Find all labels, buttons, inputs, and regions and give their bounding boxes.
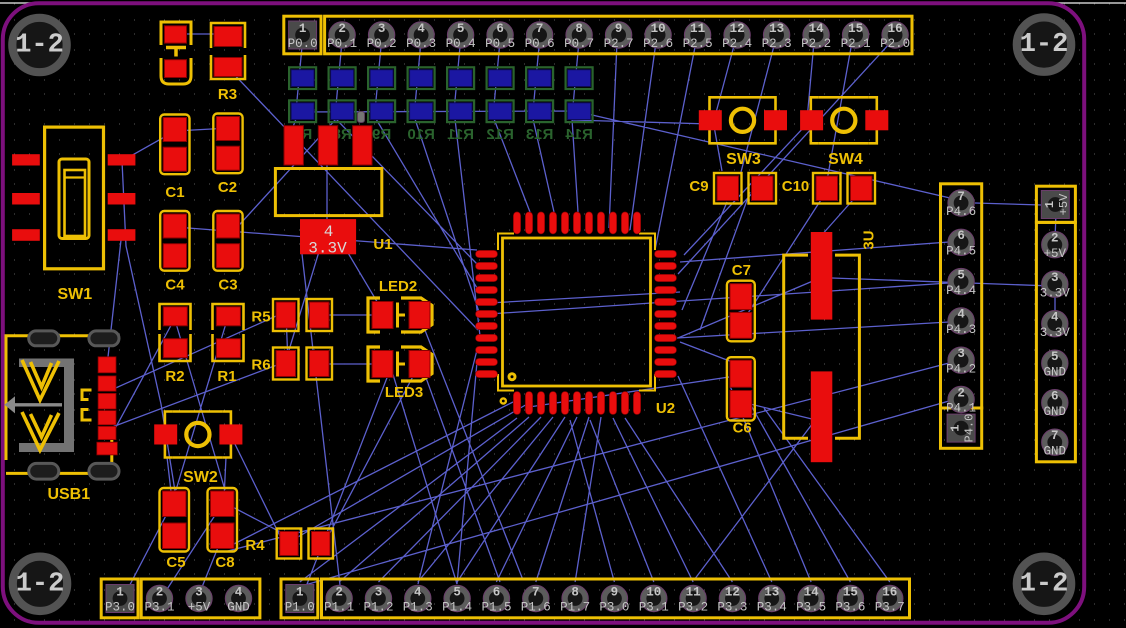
svg-text:13: 13 [764,585,779,599]
svg-text:7: 7 [957,190,965,204]
svg-text:3: 3 [375,585,383,599]
svg-text:P1.4: P1.4 [442,601,472,615]
svg-text:R12: R12 [486,126,514,143]
svg-text:P1.7: P1.7 [560,601,590,615]
svg-text:P3.6: P3.6 [835,601,865,615]
svg-text:10: 10 [646,585,661,599]
svg-text:P2.5: P2.5 [683,37,713,51]
svg-text:C9: C9 [689,178,708,195]
svg-text:2: 2 [338,22,346,36]
svg-text:C6: C6 [733,420,752,437]
svg-text:P2.1: P2.1 [841,37,871,51]
svg-text:C3: C3 [218,277,237,294]
svg-text:1: 1 [296,585,304,599]
svg-text:P1.2: P1.2 [363,601,393,615]
svg-text:5: 5 [957,268,965,282]
svg-text:U2: U2 [656,400,675,417]
svg-text:12: 12 [730,22,745,36]
svg-text:P2.3: P2.3 [762,37,792,51]
svg-text:4: 4 [324,223,334,241]
svg-text:R3: R3 [218,86,237,103]
svg-text:2: 2 [1051,232,1059,246]
svg-text:P4.6: P4.6 [946,205,976,219]
svg-text:GND: GND [1044,365,1067,379]
svg-text:P3.2: P3.2 [678,601,708,615]
svg-text:1-2: 1-2 [15,31,64,61]
svg-text:3: 3 [378,22,386,36]
svg-text:P0.5: P0.5 [485,37,515,51]
svg-text:3U: 3U [861,230,878,249]
svg-text:1-2: 1-2 [1020,569,1069,599]
svg-text:5: 5 [1051,350,1059,364]
svg-text:P0.3: P0.3 [406,37,436,51]
svg-text:GND: GND [1044,405,1067,419]
svg-text:R10: R10 [407,126,435,143]
svg-text:5: 5 [453,585,461,599]
svg-text:C10: C10 [782,178,810,195]
svg-text:R13: R13 [526,126,554,143]
svg-text:P3.0: P3.0 [599,601,629,615]
svg-text:4: 4 [957,308,965,322]
svg-text:8: 8 [575,22,583,36]
svg-text:C8: C8 [215,554,234,571]
svg-text:10: 10 [651,22,666,36]
svg-text:16: 16 [882,585,897,599]
svg-text:P3.1: P3.1 [144,601,174,615]
svg-text:3: 3 [957,347,965,361]
svg-text:9: 9 [611,585,619,599]
svg-text:P1.6: P1.6 [521,601,551,615]
svg-text:8: 8 [571,585,579,599]
svg-text:P0.4: P0.4 [446,37,476,51]
svg-text:2: 2 [156,585,164,599]
svg-text:P1.1: P1.1 [324,601,354,615]
svg-text:2: 2 [957,386,965,400]
svg-text:P0.2: P0.2 [367,37,397,51]
svg-text:+5V: +5V [188,601,211,615]
svg-text:C5: C5 [166,554,185,571]
svg-text:P1.5: P1.5 [481,601,511,615]
svg-text:P3.4: P3.4 [757,601,787,615]
svg-text:P1.0: P1.0 [285,601,315,615]
svg-text:P3.1: P3.1 [639,601,669,615]
svg-text:P4.3: P4.3 [946,323,976,337]
svg-text:C1: C1 [165,184,184,201]
svg-text:4: 4 [414,585,422,599]
svg-text:15: 15 [843,585,858,599]
svg-text:P3.5: P3.5 [796,601,826,615]
svg-text:C4: C4 [165,277,185,294]
svg-text:4: 4 [417,22,425,36]
svg-text:7: 7 [536,22,544,36]
svg-text:7: 7 [532,585,540,599]
svg-text:SW1: SW1 [57,286,92,303]
svg-text:15: 15 [848,22,863,36]
svg-text:USB1: USB1 [47,486,90,503]
svg-text:7: 7 [1051,429,1059,443]
svg-text:P2.6: P2.6 [643,37,673,51]
svg-text:P3.7: P3.7 [875,601,905,615]
svg-text:R9: R9 [372,126,391,143]
svg-text:R4: R4 [245,537,265,554]
svg-text:1: 1 [299,22,307,36]
svg-text:P4.0: P4.0 [963,414,977,443]
svg-text:6: 6 [496,22,504,36]
svg-text:1-2: 1-2 [16,569,65,599]
svg-text:R14: R14 [565,126,593,143]
svg-text:C2: C2 [218,179,237,196]
svg-text:6: 6 [493,585,501,599]
svg-text:P4.4: P4.4 [946,284,976,298]
svg-text:P2.2: P2.2 [801,37,831,51]
svg-text:3: 3 [1051,271,1059,285]
svg-text:+5V: +5V [1044,247,1067,261]
svg-text:+5V: +5V [1057,193,1071,215]
svg-text:6: 6 [957,229,965,243]
svg-text:1-2: 1-2 [1020,30,1069,60]
svg-text:P0.6: P0.6 [525,37,555,51]
svg-text:P4.2: P4.2 [946,362,976,376]
svg-text:6: 6 [1051,390,1059,404]
svg-text:P3.0: P3.0 [105,601,135,615]
svg-text:5: 5 [457,22,465,36]
svg-text:3.3V: 3.3V [1040,326,1071,340]
svg-text:3.3V: 3.3V [1040,286,1071,300]
svg-text:C7: C7 [732,262,751,279]
svg-text:R2: R2 [165,368,184,385]
svg-text:12: 12 [725,585,740,599]
svg-text:1: 1 [116,585,124,599]
svg-text:P0.0: P0.0 [288,37,318,51]
svg-text:16: 16 [888,22,903,36]
svg-text:R11: R11 [447,126,474,143]
svg-text:P4.5: P4.5 [946,245,976,259]
svg-text:GND: GND [1044,444,1067,458]
svg-text:P3.3: P3.3 [717,601,747,615]
svg-text:R6: R6 [251,357,270,374]
svg-text:P0.7: P0.7 [564,37,594,51]
svg-text:P2.4: P2.4 [722,37,752,51]
svg-text:1: 1 [1043,201,1057,208]
svg-text:1: 1 [949,424,963,431]
svg-text:LED2: LED2 [379,278,417,295]
svg-text:3.3V: 3.3V [308,240,347,258]
svg-text:4: 4 [1051,311,1059,325]
svg-text:SW4: SW4 [828,151,863,168]
svg-text:11: 11 [690,22,705,36]
svg-text:R1: R1 [217,368,236,385]
svg-text:U1: U1 [373,236,392,253]
svg-text:2: 2 [335,585,343,599]
svg-text:3: 3 [195,585,203,599]
svg-text:14: 14 [809,22,825,36]
svg-text:14: 14 [804,585,820,599]
svg-text:4: 4 [235,585,243,599]
svg-text:SW2: SW2 [183,469,218,486]
svg-text:P1.3: P1.3 [403,601,433,615]
svg-text:13: 13 [769,22,784,36]
svg-text:R5: R5 [251,309,270,326]
svg-text:P0.1: P0.1 [327,37,357,51]
svg-text:11: 11 [686,585,701,599]
svg-text:P2.7: P2.7 [604,37,634,51]
svg-text:9: 9 [615,22,623,36]
svg-text:P2.0: P2.0 [880,37,910,51]
svg-text:SW3: SW3 [726,151,761,168]
svg-text:GND: GND [227,601,250,615]
svg-text:LED3: LED3 [385,384,423,401]
